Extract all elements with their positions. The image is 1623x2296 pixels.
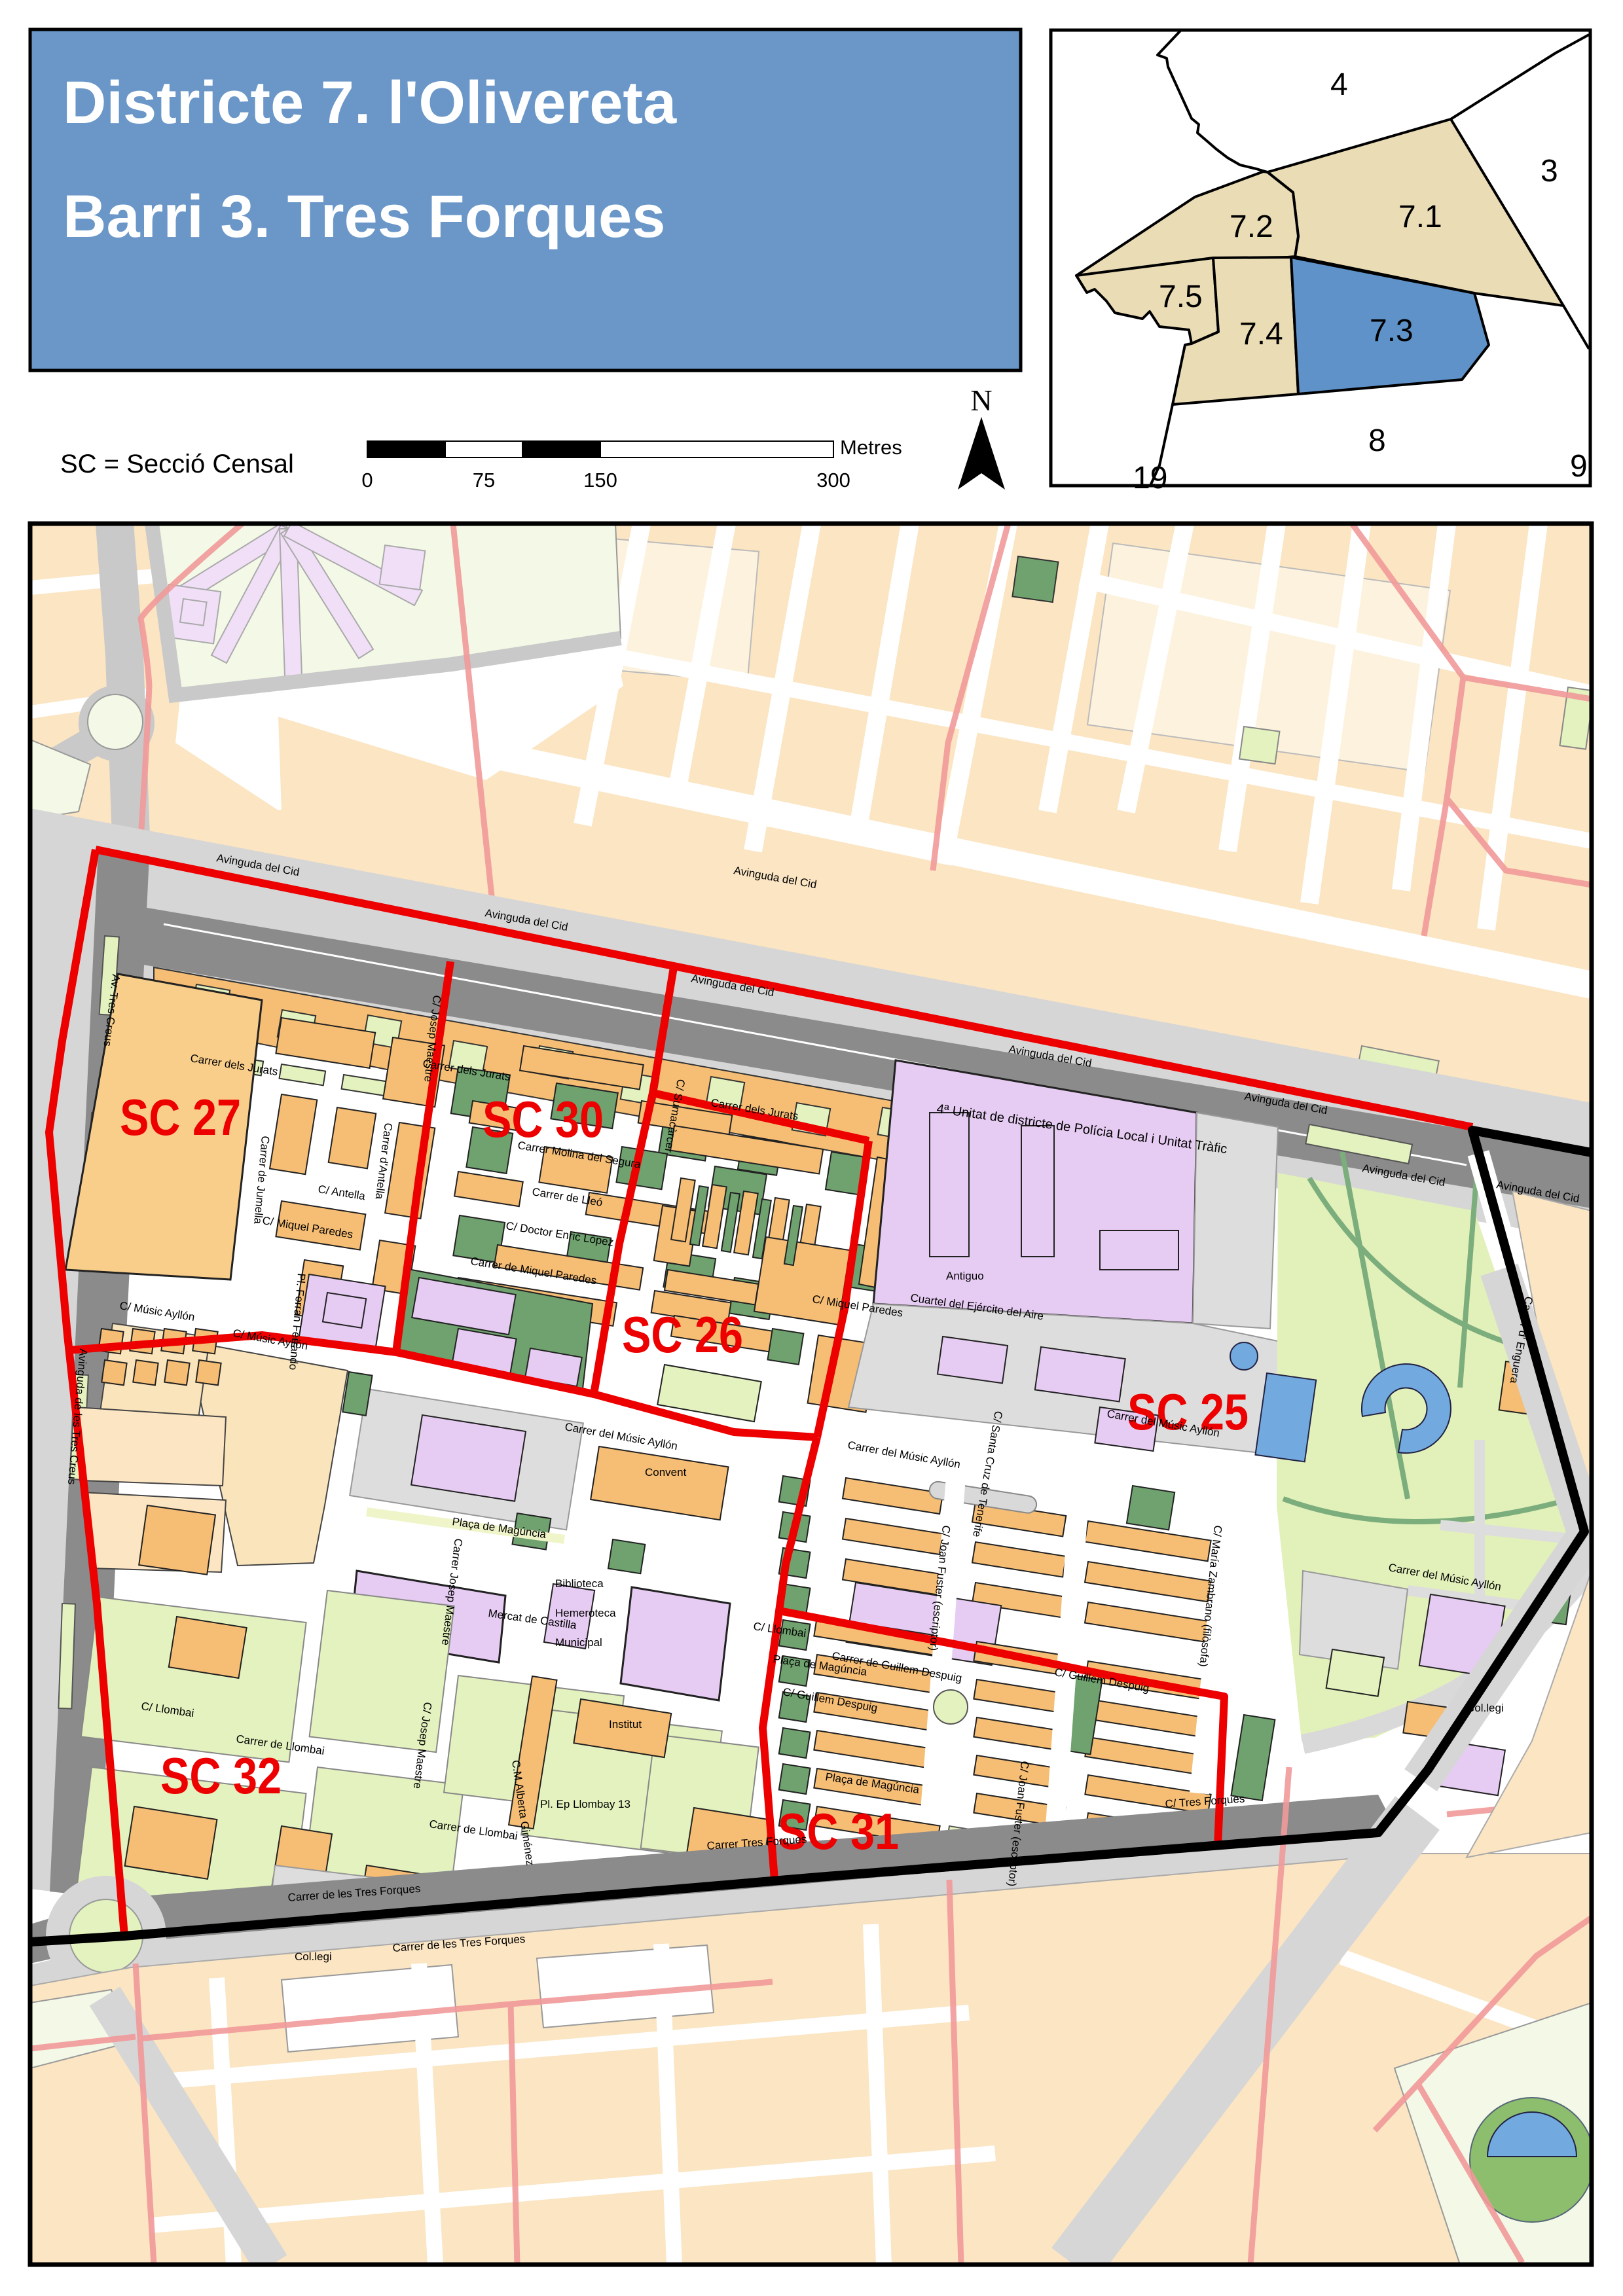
svg-text:7.2: 7.2 — [1230, 209, 1273, 244]
svg-text:Biblioteca: Biblioteca — [555, 1577, 604, 1590]
svg-text:SC = Secció Censal: SC = Secció Censal — [60, 450, 294, 478]
svg-text:SC 27: SC 27 — [120, 1088, 241, 1146]
svg-text:19: 19 — [1133, 461, 1167, 495]
svg-text:0: 0 — [361, 469, 373, 492]
svg-text:N: N — [970, 384, 992, 417]
svg-text:7.3: 7.3 — [1370, 314, 1413, 348]
svg-text:Col.legi: Col.legi — [1467, 1702, 1504, 1714]
svg-text:4: 4 — [1330, 67, 1348, 102]
svg-text:Metres: Metres — [840, 436, 902, 459]
svg-text:SC 26: SC 26 — [622, 1306, 743, 1363]
svg-text:Hemeroteca: Hemeroteca — [555, 1607, 616, 1619]
svg-text:Districte 7. l'Olivereta: Districte 7. l'Olivereta — [63, 69, 677, 136]
svg-text:9: 9 — [1570, 449, 1588, 484]
svg-text:150: 150 — [583, 469, 617, 492]
svg-text:Institut: Institut — [609, 1718, 642, 1731]
svg-text:8: 8 — [1368, 423, 1386, 458]
svg-text:Convent: Convent — [645, 1466, 687, 1479]
svg-text:Antiguo: Antiguo — [946, 1270, 984, 1282]
svg-text:Pl. Ep Llombay 13: Pl. Ep Llombay 13 — [540, 1798, 630, 1810]
svg-text:Barri 3. Tres Forques: Barri 3. Tres Forques — [63, 183, 665, 250]
svg-text:SC 30: SC 30 — [483, 1090, 604, 1148]
svg-text:7.1: 7.1 — [1398, 200, 1442, 234]
svg-text:SC 31: SC 31 — [778, 1803, 899, 1860]
svg-text:Municipal: Municipal — [555, 1636, 602, 1649]
svg-text:Col.legi: Col.legi — [295, 1950, 332, 1963]
svg-text:300: 300 — [816, 469, 850, 492]
svg-text:75: 75 — [473, 469, 495, 492]
svg-text:SC 32: SC 32 — [160, 1747, 282, 1804]
svg-text:7.5: 7.5 — [1159, 279, 1203, 314]
svg-text:3: 3 — [1541, 154, 1558, 188]
svg-text:7.4: 7.4 — [1239, 317, 1283, 351]
